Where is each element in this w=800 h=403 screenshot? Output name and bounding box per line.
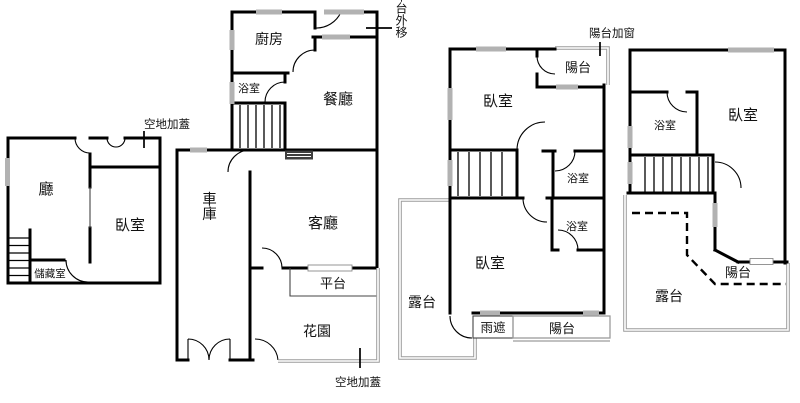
unit4-balcony-dashed-boundary: [632, 213, 786, 284]
window: [448, 160, 453, 186]
room-label-balcony-bottom: 陽台: [549, 322, 575, 337]
unit3-terrace-outline-inner: [400, 200, 475, 358]
unit4-staircase: [645, 157, 708, 192]
window: [713, 203, 718, 227]
annotation-vacant-cover-bottom: 空地加蓋: [335, 375, 381, 389]
unit-4: 浴室 臥室 陽台 露台: [625, 48, 788, 331]
room-label-bedroom: 臥室: [728, 106, 758, 124]
room-label-terrace: 露台: [655, 289, 683, 305]
room-label-bathroom-upper: 浴室: [567, 171, 589, 185]
window: [628, 162, 633, 184]
window: [628, 126, 633, 148]
room-label-dining: 餐廳: [323, 90, 353, 108]
window: [324, 10, 364, 15]
shaded-ledge: [285, 151, 313, 160]
room-label-bathroom: 浴室: [654, 118, 676, 132]
window: [476, 47, 506, 52]
room-label-garden: 花園: [303, 324, 331, 340]
room-label-rain-cover: 雨遮: [480, 320, 505, 335]
unit-3: 陽台 臥室 浴室 浴室 臥室 露台 雨遮 陽台: [400, 47, 610, 359]
window: [256, 10, 282, 15]
room-label-bedroom-top: 臥室: [483, 92, 513, 110]
annotation-vacant-cover-top: 空地加蓋: [144, 117, 190, 131]
unit1-door-arcs: [66, 138, 125, 282]
floor-plan-drawing: 廳 臥室 儲藏室 廚房 浴室 餐廳 車庫 客廳 平台 花園: [0, 0, 800, 403]
room-label-garage: 車庫: [200, 191, 216, 221]
window: [308, 265, 352, 271]
unit2-door-arcs: [188, 12, 341, 360]
window: [448, 88, 453, 120]
unit3-terrace-outline: [400, 200, 475, 358]
room-label-terrace: 露台: [408, 295, 436, 311]
room-label-bedroom-lower: 臥室: [475, 254, 505, 272]
annotation-platform-moved-out: 平台外移: [394, 0, 408, 39]
unit2-walls: [177, 12, 377, 360]
window: [750, 259, 773, 265]
room-label-living: 客廳: [308, 214, 338, 232]
unit2-staircase: [240, 105, 280, 148]
unit3-staircase: [458, 152, 502, 196]
window: [728, 48, 774, 53]
room-label-platform: 平台: [320, 277, 346, 292]
room-label-kitchen: 廚房: [255, 31, 283, 48]
unit-2: 廚房 浴室 餐廳 車庫 客廳 平台 花園: [177, 10, 378, 362]
room-label-balcony: 陽台: [725, 266, 751, 281]
room-label-bathroom: 浴室: [238, 81, 260, 95]
room-label-storage: 儲藏室: [34, 267, 66, 280]
room-label-hall: 廳: [38, 180, 53, 198]
floor-plan-page: 廳 臥室 儲藏室 廚房 浴室 餐廳 車庫 客廳 平台 花園: [0, 0, 800, 403]
unit4-walls: [628, 50, 787, 263]
window: [190, 148, 207, 153]
window: [583, 311, 599, 316]
window: [480, 311, 500, 316]
room-label-bedroom: 臥室: [115, 216, 145, 234]
room-label-balcony-top: 陽台: [565, 61, 591, 76]
window: [5, 158, 10, 186]
unit-1: 廳 臥室 儲藏室: [5, 138, 160, 283]
annotation-balcony-added-window: 陽台加窗: [589, 26, 635, 40]
room-label-bathroom-lower: 浴室: [566, 219, 588, 233]
window: [322, 35, 350, 40]
window: [556, 85, 578, 90]
window: [230, 82, 235, 104]
unit1-walls: [8, 138, 160, 283]
window: [230, 30, 235, 50]
unit1-staircase: [8, 238, 30, 276]
